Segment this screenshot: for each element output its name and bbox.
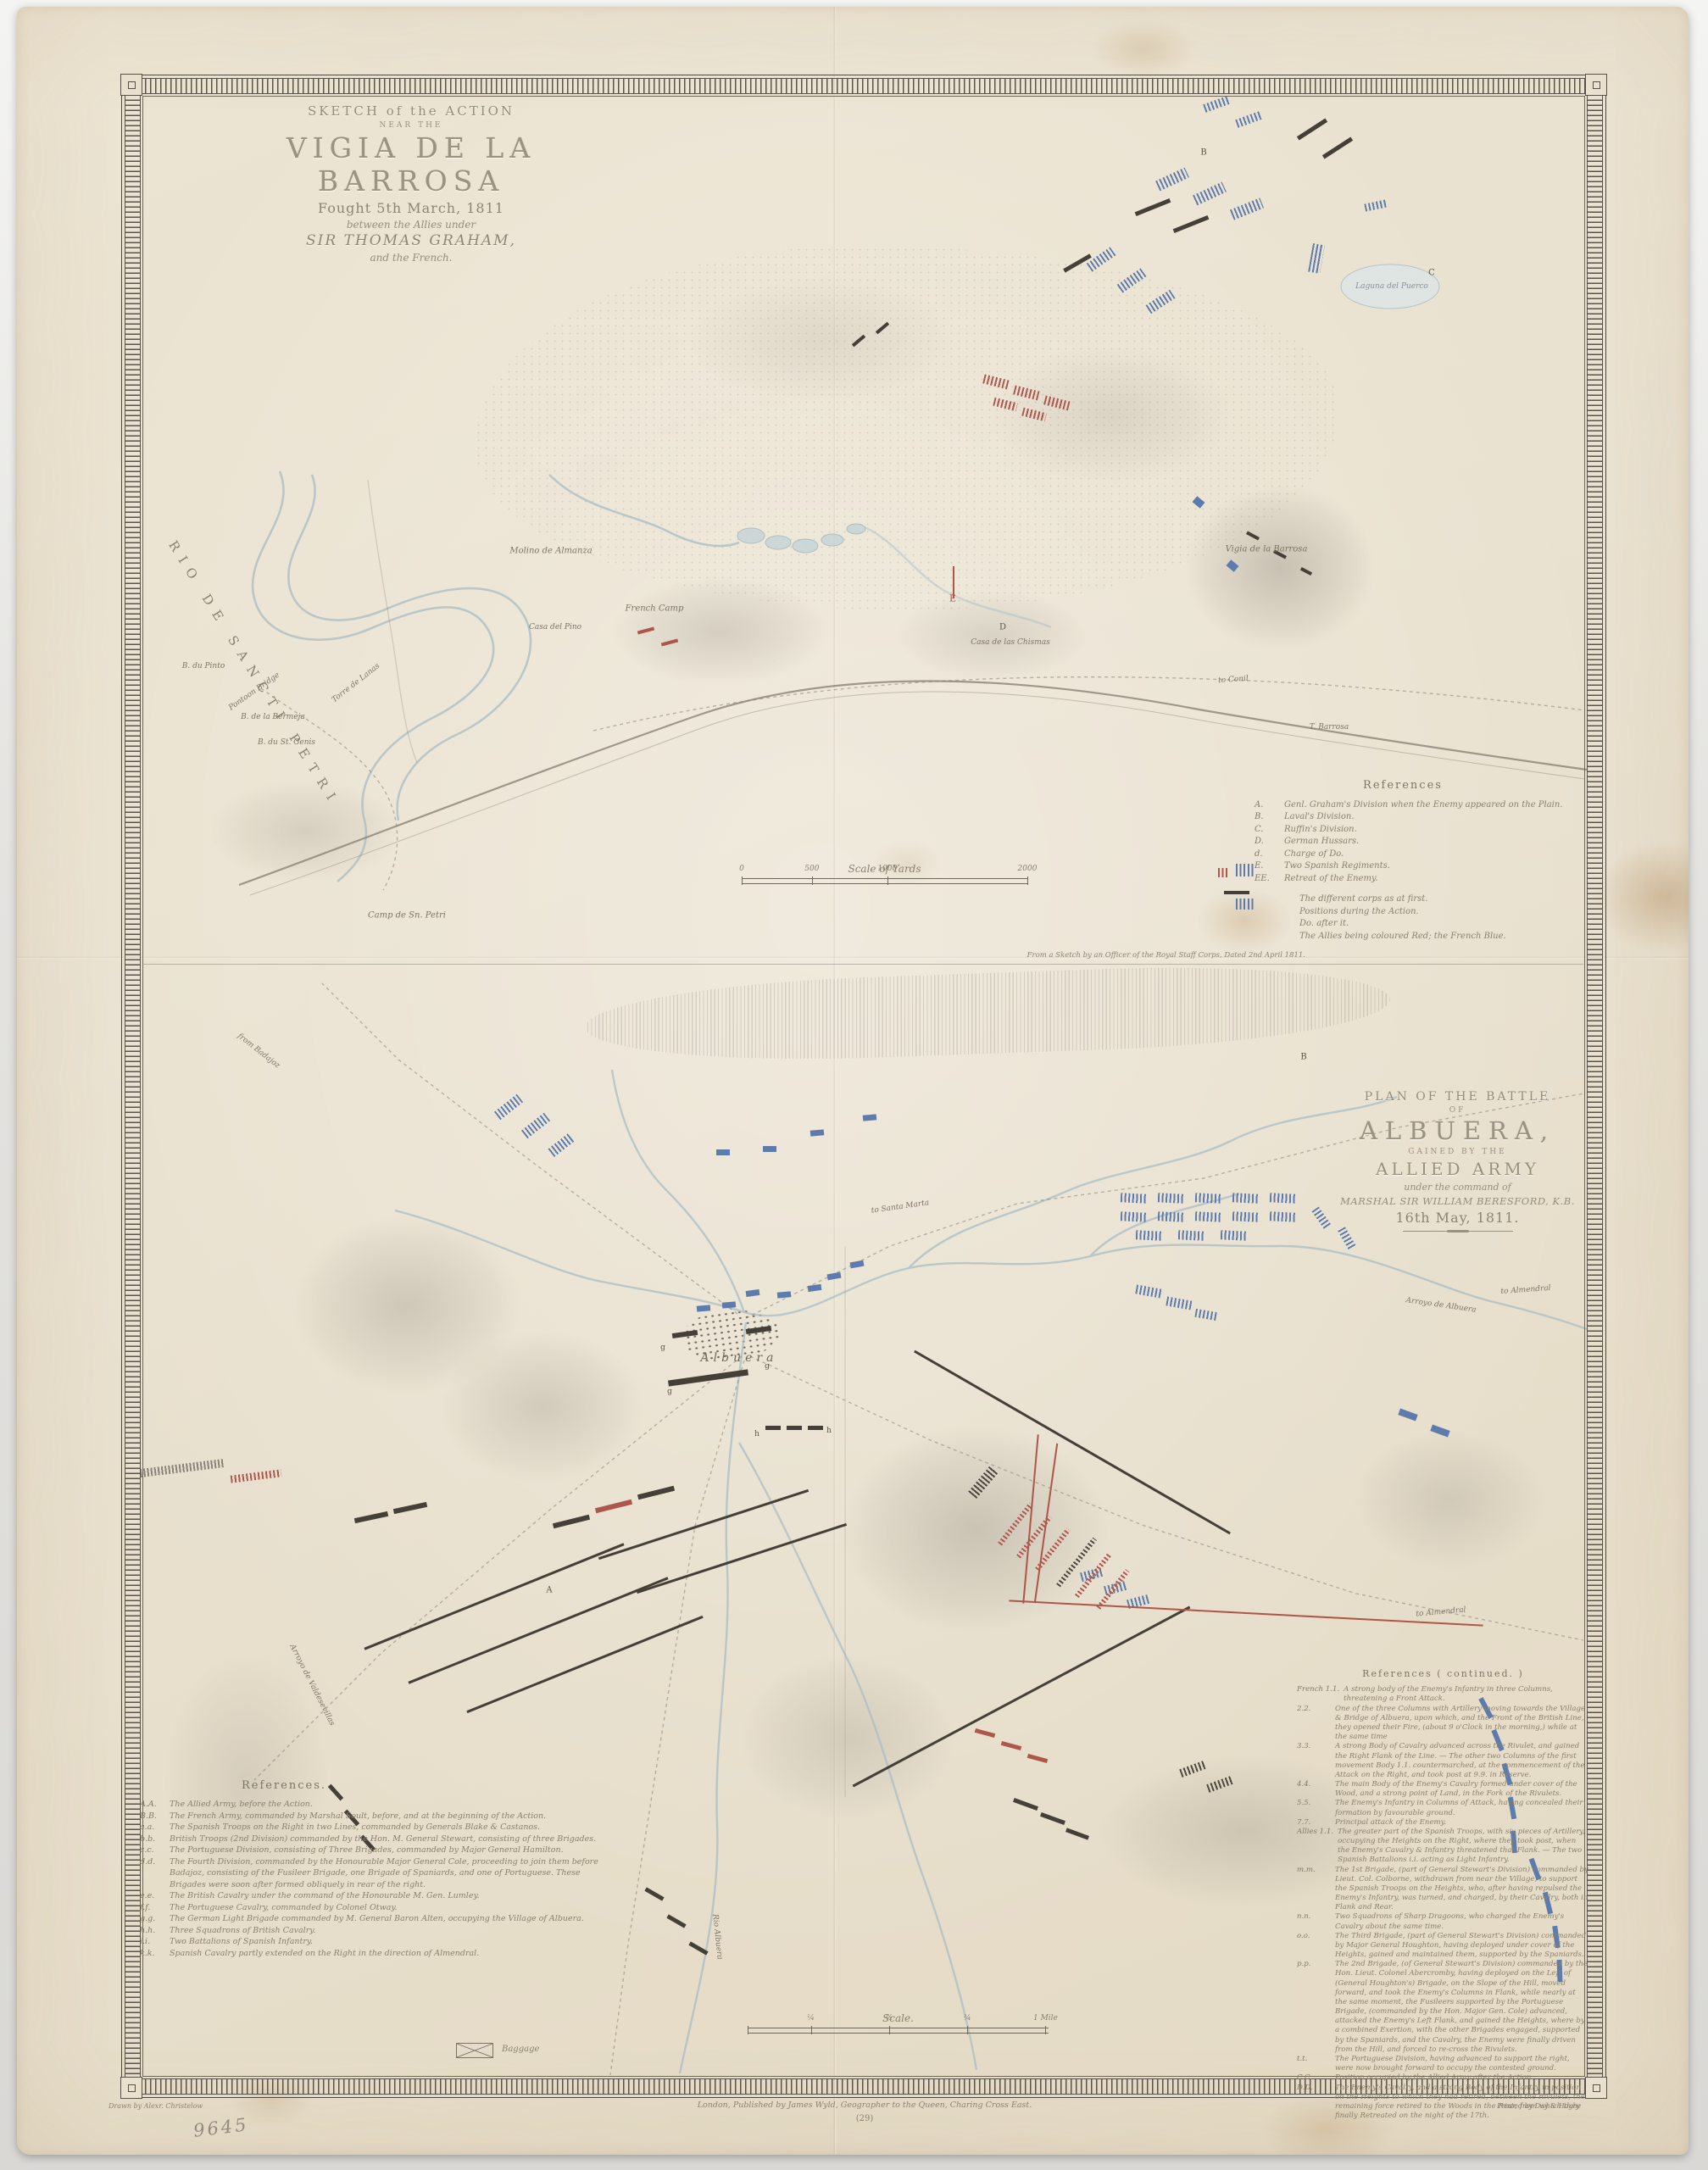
reference-item: Do. after it. [1270, 918, 1602, 931]
reference-item: A.Genl. Graham's Division when the Enemy… [1255, 799, 1602, 812]
barrosa-title-line2: NEAR THE [208, 121, 615, 130]
publisher-imprint: London, Published by James Wyld, Geograp… [542, 2100, 1187, 2110]
albuera-title-line6: under the command of [1316, 1182, 1600, 1193]
albuera-references-left: References. A.A.The Allied Army, before … [140, 1778, 615, 1959]
reference-item: p.p.The 2nd Brigade, (of General Stewart… [1297, 1960, 1589, 2055]
reference-item: i.i.Two Battalions of Spanish Infantry. [140, 1936, 615, 1947]
scale-tick: ¾ [964, 2014, 971, 2023]
scale-tick: 2000 [1018, 865, 1038, 873]
reference-item: 3.3.A strong Body of Cavalry advanced ac… [1297, 1742, 1589, 1780]
albuera-title-main: ALBUERA, [1316, 1116, 1600, 1145]
scale-tick: 500 [804, 865, 819, 873]
reference-item: EE.Retreat of the Enemy. [1255, 873, 1602, 886]
albuera-title-army: ALLIED ARMY [1316, 1159, 1600, 1179]
albuera-references-left-heading: References. [140, 1778, 428, 1794]
reference-item: 7.7.Principal attack of the Enemy. [1297, 1818, 1589, 1828]
reference-item: f.f.The Portuguese Cavalry, commanded by… [140, 1902, 615, 1913]
barrosa-title-block: SKETCH of the ACTION NEAR THE VIGIA DE L… [208, 103, 615, 264]
reference-item: C.C.Position occupied by the Allied Army… [1297, 2073, 1589, 2083]
reference-item: D.German Hussars. [1255, 836, 1602, 849]
engraver-credit-left: Drawn by Alexr. Christelow [108, 2102, 203, 2110]
barrosa-title-line1: SKETCH of the ACTION [208, 103, 615, 119]
albuera-scale-bar: ¼ ½ ¾ 1 Mile [748, 2028, 1049, 2034]
printer-credit-right: Printed by Day & Haghe [1497, 2102, 1633, 2110]
reference-item: d.d.The Fourth Division, commanded by th… [140, 1856, 615, 1890]
albuera-reference-list-left: A.A.The Allied Army, before the Action.B… [140, 1799, 615, 1959]
albuera-title-date: 16th May, 1811. [1316, 1210, 1600, 1226]
barrosa-title-main: VIGIA DE LA BARROSA [208, 131, 615, 198]
reference-item: C.Ruffin's Division. [1255, 824, 1602, 837]
corner-ornament-top-left [120, 74, 142, 96]
border-ticks-left [125, 78, 141, 2095]
reference-item: n.n.Two Squadrons of Sharp Dragoons, who… [1297, 1912, 1589, 1931]
reference-item: French 1.1.A strong body of the Enemy's … [1297, 1685, 1589, 1704]
scale-tick: ½ [885, 2014, 893, 2023]
scale-tick: 1000 [877, 865, 897, 873]
barrosa-reference-notes: The different corps as at first.Position… [1204, 893, 1602, 943]
reference-item: The Allies being coloured Red; the Frenc… [1270, 931, 1602, 943]
reference-item: d.Charge of Do. [1255, 849, 1602, 861]
scanned-map-photo: RIO DE SANCTI PETRIMolino de AlmanzaFren… [0, 0, 1708, 2170]
albuera-references-right-heading: References ( continued. ) [1297, 1668, 1589, 1680]
reference-item: b.b.British Troops (2nd Division) comman… [140, 1833, 615, 1844]
barrosa-scale: Scale of Yards 0 500 1000 2000 [742, 863, 1027, 884]
barrosa-references: References A.Genl. Graham's Division whe… [1204, 778, 1602, 943]
baggage-symbol [456, 2043, 493, 2058]
barrosa-scale-bar: 0 500 1000 2000 [742, 878, 1027, 884]
reference-item: The different corps as at first. [1270, 893, 1602, 906]
reference-item: h.h.Three Squadrons of British Cavalry. [140, 1925, 615, 1936]
corner-ornament-top-right [1585, 74, 1607, 96]
reference-item: a.a.The Spanish Troops on the Right in t… [140, 1822, 615, 1833]
reference-item: Allies 1.1.The greater part of the Spani… [1297, 1828, 1589, 1866]
title-flourish [1403, 1231, 1513, 1232]
reference-item: 5.5.The Enemy's Infantry in Columns of A… [1297, 1799, 1589, 1817]
corner-ornament-bottom-left [120, 2077, 142, 2099]
reference-item: m.m.The 1st Brigade, (part of General St… [1297, 1866, 1589, 1913]
plate-number: (29) [831, 2114, 899, 2123]
albuera-title-line4: GAINED BY THE [1316, 1148, 1600, 1156]
barrosa-title-commander: SIR THOMAS GRAHAM, [208, 232, 615, 249]
reference-item: A.A.The Allied Army, before the Action. [140, 1799, 615, 1810]
baggage-label: Baggage [502, 2045, 539, 2054]
albuera-scale-label: Scale. [748, 2012, 1049, 2024]
border-ticks-top [125, 78, 1603, 94]
reference-item: B.B.The French Army, commanded by Marsha… [140, 1811, 615, 1822]
reference-item: Positions during the Action. [1270, 906, 1602, 919]
barrosa-title-line7: and the French. [208, 252, 615, 264]
reference-item: t.t.The Portuguese Division, having adva… [1297, 2055, 1589, 2073]
reference-item: c.c.The Portuguese Division, consisting … [140, 1844, 615, 1856]
albuera-reference-list-right: French 1.1.A strong body of the Enemy's … [1297, 1685, 1589, 2121]
scale-tick: 0 [739, 865, 744, 873]
albuera-references-right: References ( continued. ) French 1.1.A s… [1297, 1668, 1589, 2121]
reference-item: 4.4.The main Body of the Enemy's Cavalry… [1297, 1780, 1589, 1799]
map-separator-rule [142, 964, 1583, 965]
reference-item: e.e.The British Cavalry under the comman… [140, 1890, 615, 1901]
barrosa-title-line5: between the Allies under [208, 219, 615, 231]
reference-item: k.k.Spanish Cavalry partly extended on t… [140, 1948, 615, 1959]
barrosa-references-heading: References [1204, 778, 1602, 794]
albuera-title-line2: OF [1316, 1106, 1600, 1115]
reference-item: g.g.The German Light Brigade commanded b… [140, 1913, 615, 1924]
reference-item: B.Laval's Division. [1255, 811, 1602, 824]
barrosa-reference-list: A.Genl. Graham's Division when the Enemy… [1204, 799, 1602, 886]
reference-item: 2.2.One of the three Columns with Artill… [1297, 1705, 1589, 1743]
reference-item: E.Two Spanish Regiments. [1255, 860, 1602, 873]
albuera-scale: Scale. ¼ ½ ¾ 1 Mile [748, 2012, 1049, 2034]
scale-tick: ¼ [807, 2014, 815, 2023]
barrosa-source-note: From a Sketch by an Officer of the Royal… [1017, 951, 1305, 960]
reference-item: o.o.The Third Brigade, (part of General … [1297, 1932, 1589, 1961]
barrosa-title-date: Fought 5th March, 1811 [208, 200, 615, 216]
albuera-title-block: PLAN OF THE BATTLE OF ALBUERA, GAINED BY… [1316, 1090, 1600, 1232]
albuera-title-commander: MARSHAL SIR WILLIAM BERESFORD, K.B. [1316, 1195, 1600, 1207]
scale-tick: 1 Mile [1033, 2014, 1058, 2023]
albuera-title-line1: PLAN OF THE BATTLE [1316, 1090, 1600, 1104]
